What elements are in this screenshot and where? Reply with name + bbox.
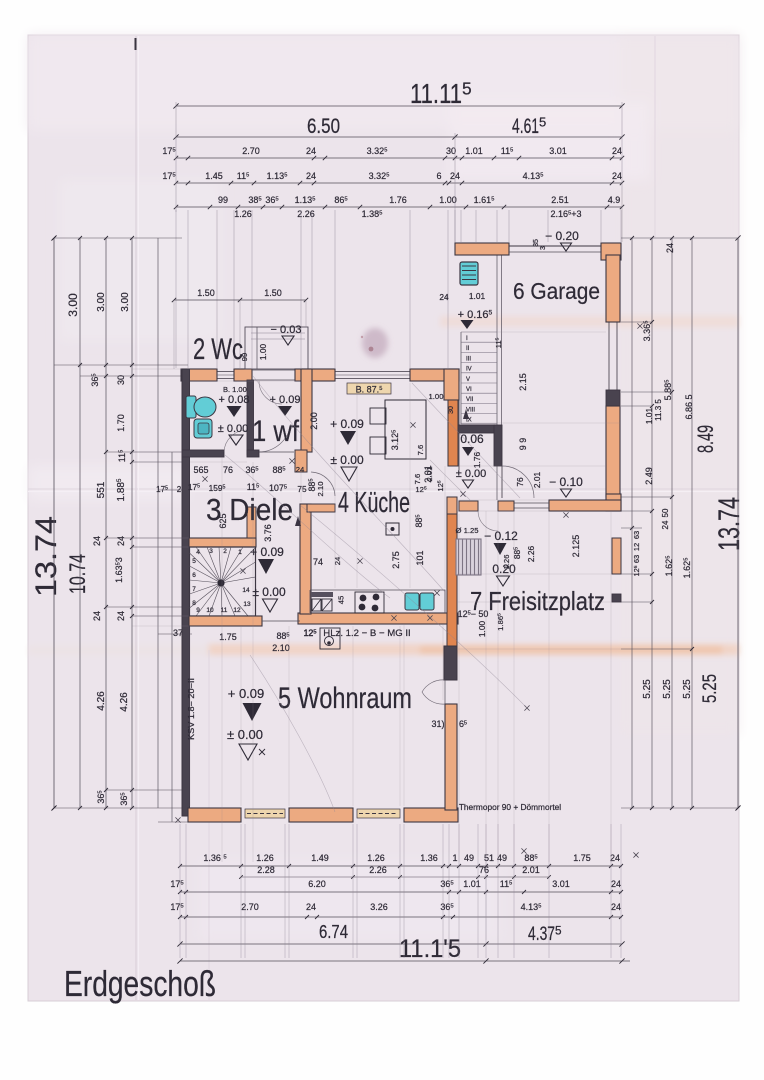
svg-text:1.76: 1.76: [389, 195, 407, 205]
svg-text:0.06: 0.06: [460, 432, 484, 446]
svg-text:24: 24: [92, 536, 102, 546]
svg-text:5.25: 5.25: [642, 679, 653, 699]
svg-text:2.70: 2.70: [241, 902, 259, 912]
svg-text:− 0.03: − 0.03: [271, 324, 302, 336]
svg-text:24: 24: [296, 465, 305, 474]
svg-text:1.26: 1.26: [367, 853, 385, 863]
svg-text:101: 101: [415, 551, 425, 566]
svg-text:24: 24: [116, 536, 126, 546]
svg-text:1.00: 1.00: [439, 195, 457, 205]
svg-text:6.86 5: 6.86 5: [684, 394, 694, 419]
svg-text:2.165+3: 2.165+3: [551, 209, 582, 219]
svg-text:3.26: 3.26: [370, 902, 388, 912]
svg-text:12: 12: [233, 607, 241, 614]
svg-text:5: 5: [192, 558, 196, 565]
svg-text:24: 24: [333, 556, 342, 565]
svg-text:551: 551: [96, 481, 107, 498]
svg-text:14: 14: [242, 587, 250, 594]
svg-text:76: 76: [515, 477, 525, 487]
svg-text:24: 24: [610, 853, 620, 863]
svg-text:HLz. 1.2 − B − MG II: HLz. 1.2 − B − MG II: [323, 628, 410, 639]
svg-text:24: 24: [92, 611, 102, 621]
svg-text:+ 0.09: + 0.09: [270, 394, 301, 406]
svg-text:− 0.12: − 0.12: [484, 529, 518, 543]
svg-text:+ 0.165: + 0.165: [458, 309, 493, 321]
svg-text:IV: IV: [466, 367, 472, 373]
svg-text:1.26: 1.26: [502, 555, 511, 570]
svg-text:35: 35: [533, 239, 540, 247]
svg-text:2.15: 2.15: [518, 373, 528, 390]
svg-text:− 0.20: − 0.20: [545, 229, 579, 243]
svg-text:3.01: 3.01: [552, 879, 570, 889]
svg-text:9 9: 9 9: [518, 438, 528, 450]
svg-text:± 0.00: ± 0.00: [218, 423, 249, 435]
svg-text:1.01: 1.01: [465, 146, 483, 156]
svg-text:30: 30: [448, 406, 455, 414]
svg-text:24: 24: [306, 146, 316, 156]
svg-text:10: 10: [206, 607, 214, 614]
svg-text:VI: VI: [466, 387, 472, 393]
svg-text:B. 1.00: B. 1.00: [223, 385, 247, 394]
svg-text:2.75: 2.75: [391, 551, 401, 568]
svg-text:8: 8: [192, 600, 196, 607]
svg-text:Thermopor 90 + Dömmortel: Thermopor 90 + Dömmortel: [459, 802, 561, 812]
svg-text:30: 30: [116, 375, 126, 385]
svg-text:6: 6: [192, 572, 196, 579]
svg-text:1.50: 1.50: [197, 288, 215, 298]
svg-text:1.36: 1.36: [420, 853, 438, 863]
svg-text:2.28: 2.28: [257, 865, 275, 875]
svg-text:1.00: 1.00: [429, 392, 444, 401]
svg-text:V: V: [466, 377, 470, 383]
svg-text:24: 24: [611, 879, 621, 889]
svg-text:50: 50: [661, 508, 670, 517]
svg-text:6.74: 6.74: [319, 922, 348, 942]
svg-text:2.01: 2.01: [425, 467, 434, 482]
svg-text:+ 0.09: + 0.09: [228, 686, 265, 701]
svg-text:24: 24: [661, 520, 670, 529]
svg-text:9: 9: [196, 607, 200, 614]
svg-text:1.01: 1.01: [469, 291, 486, 301]
svg-text:III: III: [466, 356, 471, 362]
svg-text:75: 75: [297, 484, 307, 494]
svg-text:1 wf: 1 wf: [252, 415, 300, 448]
svg-text:99: 99: [218, 195, 228, 205]
svg-text:2.125: 2.125: [571, 535, 581, 557]
svg-text:24: 24: [306, 902, 316, 912]
svg-text:51: 51: [484, 853, 494, 863]
svg-text:76: 76: [479, 865, 489, 875]
svg-text:2.01: 2.01: [522, 865, 540, 875]
svg-text:5.25: 5.25: [662, 679, 673, 699]
svg-text:13: 13: [243, 601, 251, 608]
svg-text:4: 4: [196, 549, 200, 556]
svg-text:31): 31): [432, 719, 445, 729]
svg-text:76: 76: [223, 465, 233, 475]
svg-text:B. 87.5: B. 87.5: [356, 385, 383, 395]
svg-text:3.00: 3.00: [96, 292, 107, 312]
svg-text:3.76: 3.76: [263, 524, 273, 541]
svg-text:2.01: 2.01: [532, 472, 542, 489]
svg-text:11.1'5: 11.1'5: [399, 935, 461, 963]
svg-text:1.00: 1.00: [258, 344, 268, 361]
svg-text:63: 63: [632, 531, 641, 539]
svg-text:± 0.00: ± 0.00: [456, 468, 487, 480]
svg-text:24: 24: [439, 292, 449, 302]
svg-text:13.74: 13.74: [713, 497, 746, 551]
svg-text:24: 24: [612, 171, 622, 181]
svg-text:+ 0.09: + 0.09: [330, 417, 364, 431]
svg-text:5.25: 5.25: [700, 674, 721, 703]
svg-text:8.49: 8.49: [693, 425, 718, 453]
svg-text:1.50: 1.50: [264, 288, 282, 298]
svg-text:6.20: 6.20: [308, 879, 326, 889]
svg-text:± 0.00: ± 0.00: [227, 727, 263, 742]
svg-text:VII: VII: [466, 397, 474, 403]
svg-text:24: 24: [612, 146, 622, 156]
svg-text:2.49: 2.49: [644, 467, 654, 485]
svg-text:625: 625: [218, 514, 228, 529]
svg-text:24: 24: [306, 171, 316, 181]
svg-text:30: 30: [446, 146, 456, 156]
svg-text:1.26: 1.26: [234, 209, 252, 219]
svg-text:2.10: 2.10: [272, 643, 289, 653]
svg-text:2.26: 2.26: [369, 865, 387, 875]
svg-text:7: 7: [192, 586, 196, 593]
svg-text:1: 1: [452, 853, 457, 863]
svg-text:5.25: 5.25: [682, 679, 693, 699]
svg-text:± 0.00: ± 0.00: [252, 585, 286, 599]
svg-text:+ 0.09: + 0.09: [250, 545, 284, 559]
svg-text:2.00: 2.00: [309, 412, 319, 429]
svg-text:3.00: 3.00: [66, 293, 80, 317]
svg-text:6 Garage: 6 Garage: [513, 278, 600, 304]
svg-text:11: 11: [221, 607, 228, 614]
svg-text:6: 6: [436, 171, 441, 181]
svg-text:49: 49: [497, 853, 507, 863]
svg-text:KSV 1.8− 20−II: KSV 1.8− 20−II: [187, 678, 196, 740]
svg-text:− 0.10: − 0.10: [549, 475, 583, 489]
svg-text:45: 45: [337, 596, 346, 605]
svg-text:3: 3: [540, 246, 547, 250]
svg-text:74: 74: [313, 557, 323, 567]
svg-text:10.74: 10.74: [65, 554, 90, 594]
svg-text:4.9: 4.9: [608, 195, 621, 205]
svg-text:1: 1: [238, 549, 242, 556]
svg-text:5 Wohnraum: 5 Wohnraum: [278, 682, 412, 715]
svg-text:63: 63: [632, 555, 641, 563]
svg-text:4.26: 4.26: [119, 692, 130, 712]
svg-text:7.6: 7.6: [413, 474, 422, 485]
svg-text:7.6: 7.6: [416, 445, 425, 456]
svg-text:1.70: 1.70: [116, 414, 126, 432]
svg-text:24: 24: [611, 902, 621, 912]
svg-text:2.51: 2.51: [551, 195, 569, 205]
svg-text:II: II: [466, 346, 470, 352]
svg-text:2.10: 2.10: [316, 482, 325, 497]
svg-text:1.01: 1.01: [644, 407, 654, 424]
svg-text:4.26: 4.26: [96, 691, 107, 711]
svg-text:VIII: VIII: [466, 407, 475, 413]
svg-text:1.00: 1.00: [477, 621, 487, 638]
svg-text:125− 50: 125− 50: [458, 609, 489, 619]
svg-text:24: 24: [116, 611, 126, 621]
svg-text:6.50: 6.50: [307, 115, 340, 138]
svg-text:2: 2: [177, 485, 182, 494]
svg-text:7 Freisitzplatz: 7 Freisitzplatz: [470, 586, 605, 616]
svg-text:2.70: 2.70: [242, 146, 260, 156]
svg-text:2 Wc: 2 Wc: [193, 333, 243, 366]
svg-text:1.26: 1.26: [256, 853, 274, 863]
svg-text:Erdgeschoß: Erdgeschoß: [64, 963, 216, 1004]
svg-text:± 0.00: ± 0.00: [330, 453, 364, 467]
svg-text:1.75: 1.75: [573, 853, 591, 863]
svg-text:565: 565: [194, 465, 209, 475]
svg-text:24: 24: [665, 243, 675, 253]
svg-text:49: 49: [464, 853, 474, 863]
svg-text:3.01: 3.01: [549, 146, 567, 156]
svg-text:2: 2: [223, 548, 227, 555]
svg-text:+ 0.08: + 0.08: [219, 394, 250, 406]
svg-text:1.36 5: 1.36 5: [203, 853, 226, 863]
svg-text:1.6353: 1.6353: [114, 557, 124, 583]
svg-text:1.76: 1.76: [472, 452, 482, 469]
svg-text:2.26: 2.26: [526, 546, 536, 563]
svg-text:11.3 5: 11.3 5: [654, 399, 663, 421]
svg-text:3.00: 3.00: [120, 292, 131, 312]
svg-text:1.45: 1.45: [205, 171, 223, 181]
svg-text:1.49: 1.49: [311, 853, 329, 863]
svg-text:99: 99: [240, 353, 249, 362]
svg-text:12: 12: [632, 543, 641, 551]
svg-text:3: 3: [209, 548, 213, 555]
svg-text:13.74: 13.74: [30, 516, 63, 597]
